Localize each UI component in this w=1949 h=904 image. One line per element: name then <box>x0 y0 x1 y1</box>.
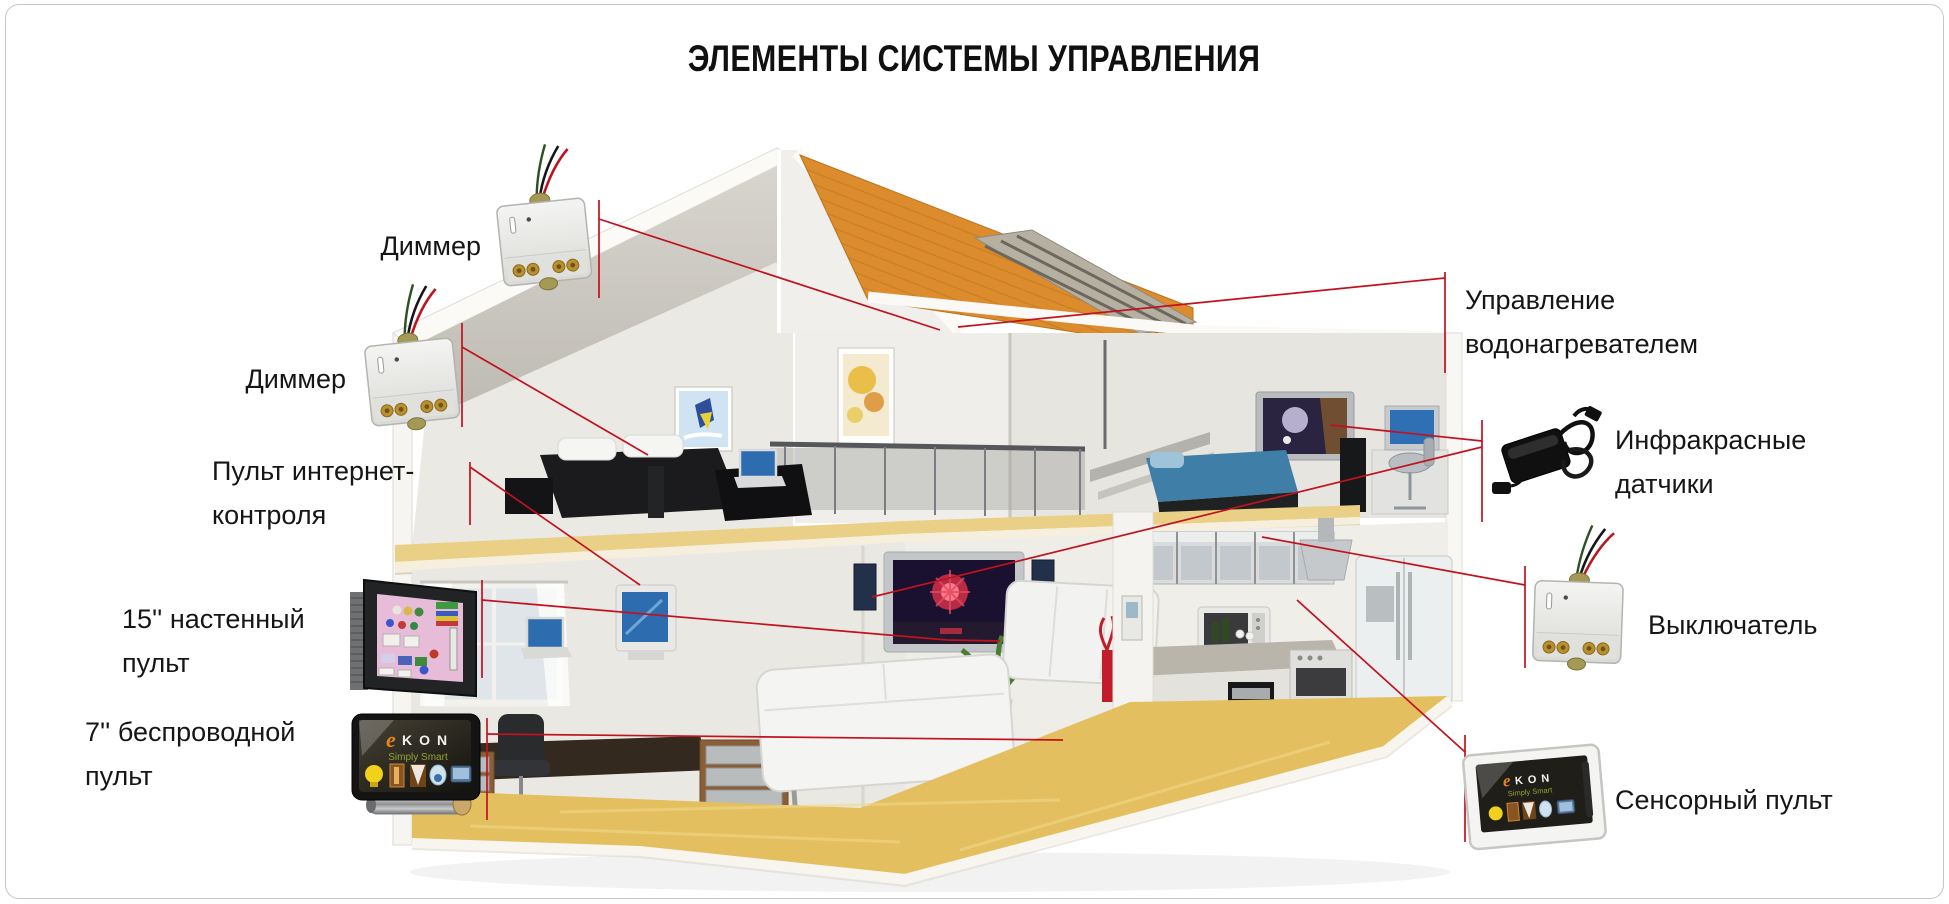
label-line: пульт <box>122 641 352 685</box>
label-line: водонагревателем <box>1465 322 1735 366</box>
poster-ski <box>675 387 732 451</box>
door-icon <box>1507 802 1520 821</box>
label-line: 7'' беспроводной <box>85 710 335 754</box>
ekon-logo-text: KON <box>402 732 454 748</box>
label-internet-control: Пульт интернет- контроля <box>212 449 462 537</box>
dimmer-module-top-image <box>490 141 593 294</box>
label-water-heater: Управление водонагревателем <box>1465 278 1735 366</box>
ir-sensors-image <box>1492 405 1602 494</box>
label-switch: Выключатель <box>1648 603 1888 647</box>
label-line: Диммер <box>295 224 481 268</box>
label-wireless-panel-7: 7'' беспроводной пульт <box>85 710 335 798</box>
label-line: Инфракрасные <box>1615 418 1855 462</box>
stove <box>1290 650 1352 704</box>
ground-floor <box>412 512 1452 886</box>
label-line: Управление <box>1465 278 1735 322</box>
label-line: пульт <box>85 754 335 798</box>
label-line: контроля <box>212 493 462 537</box>
dimmer-module-bottom-image <box>358 281 461 434</box>
ir-emitter <box>1492 482 1511 494</box>
floor-speaker <box>648 466 664 518</box>
fridge <box>1356 556 1452 704</box>
label-line: Диммер <box>160 357 346 401</box>
light-icon <box>365 765 383 783</box>
label-ir-sensors: Инфракрасные датчики <box>1615 418 1855 506</box>
label-line: Пульт интернет- <box>212 449 462 493</box>
office-laptop <box>527 618 563 648</box>
speaker-left <box>854 564 876 610</box>
label-line: Выключатель <box>1648 603 1888 647</box>
wall-panel-15-image <box>350 580 476 696</box>
wireless-panel-7-image: e KON Simply Smart <box>352 714 480 815</box>
ekon-tagline: Simply Smart <box>388 752 448 763</box>
infographic: e KON Simply Smart <box>0 0 1949 904</box>
page-title: ЭЛЕМЕНТЫ СИСТЕМЫ УПРАВЛЕНИЯ <box>0 38 1949 80</box>
label-dimmer-bottom: Диммер <box>160 357 346 401</box>
doorway-pillar <box>1113 512 1153 710</box>
label-dimmer-top: Диммер <box>295 224 481 268</box>
office-monitor <box>616 585 676 660</box>
label-line: 15'' настенный <box>122 597 352 641</box>
poster-abstract <box>838 348 894 448</box>
label-touch-panel: Сенсорный пульт <box>1615 778 1895 822</box>
label-line: Сенсорный пульт <box>1615 778 1895 822</box>
label-wall-panel-15: 15'' настенный пульт <box>122 597 352 685</box>
ekon-logo-e: e <box>386 727 396 752</box>
label-line: датчики <box>1615 462 1855 506</box>
switch-module-image <box>1532 524 1625 672</box>
touch-panel-image: e KON Simply Smart <box>1463 744 1607 849</box>
